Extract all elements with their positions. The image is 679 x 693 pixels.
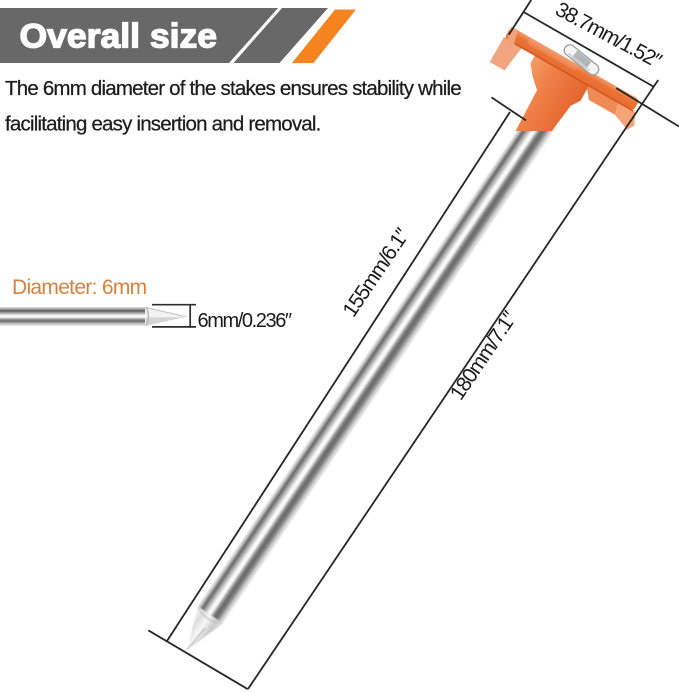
svg-text:The 6mm diameter of the stakes: The 6mm diameter of the stakes ensures s… bbox=[5, 77, 461, 100]
svg-text:6mm/0.236″: 6mm/0.236″ bbox=[198, 310, 292, 332]
svg-text:facilitating easy insertion an: facilitating easy insertion and removal. bbox=[5, 113, 321, 136]
svg-text:Overall size: Overall size bbox=[20, 18, 217, 55]
svg-text:Diameter: 6mm: Diameter: 6mm bbox=[12, 276, 147, 299]
svg-text:180mm/7.1″: 180mm/7.1″ bbox=[446, 307, 522, 405]
